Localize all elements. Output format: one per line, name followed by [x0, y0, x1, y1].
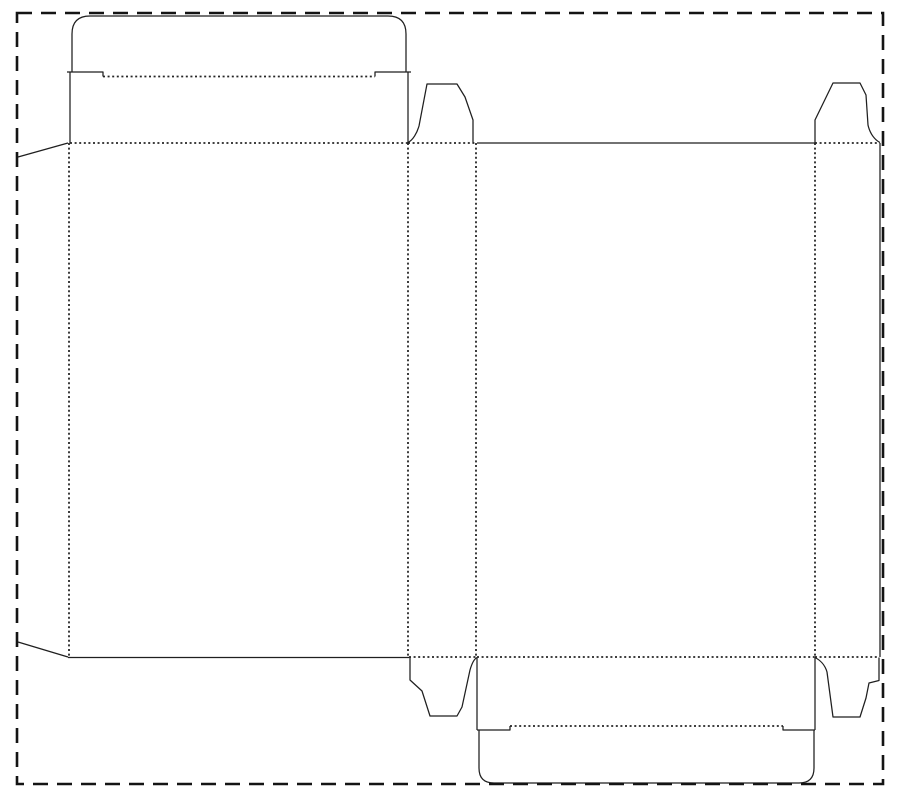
bottom-tuck-flap — [479, 730, 814, 783]
dust-flap-bottom-left — [410, 658, 477, 717]
top-tuck-shoulder-left — [67, 72, 103, 77]
dust-flap-top-left — [408, 84, 473, 143]
sheet-boundary — [17, 13, 883, 784]
bottom-tuck-shoulder-right — [783, 726, 815, 730]
top-tuck-flap — [72, 16, 406, 73]
dieline-drawing — [0, 0, 900, 800]
glue-flap-bottom-edge — [18, 642, 68, 657]
glue-flap-top-edge — [18, 143, 68, 157]
dust-flap-bottom-right — [815, 658, 879, 718]
dieline-sheet — [0, 0, 900, 800]
top-tuck-shoulder-right — [375, 72, 411, 77]
bottom-tuck-shoulder-left — [477, 726, 510, 730]
dust-flap-top-right — [815, 83, 880, 143]
